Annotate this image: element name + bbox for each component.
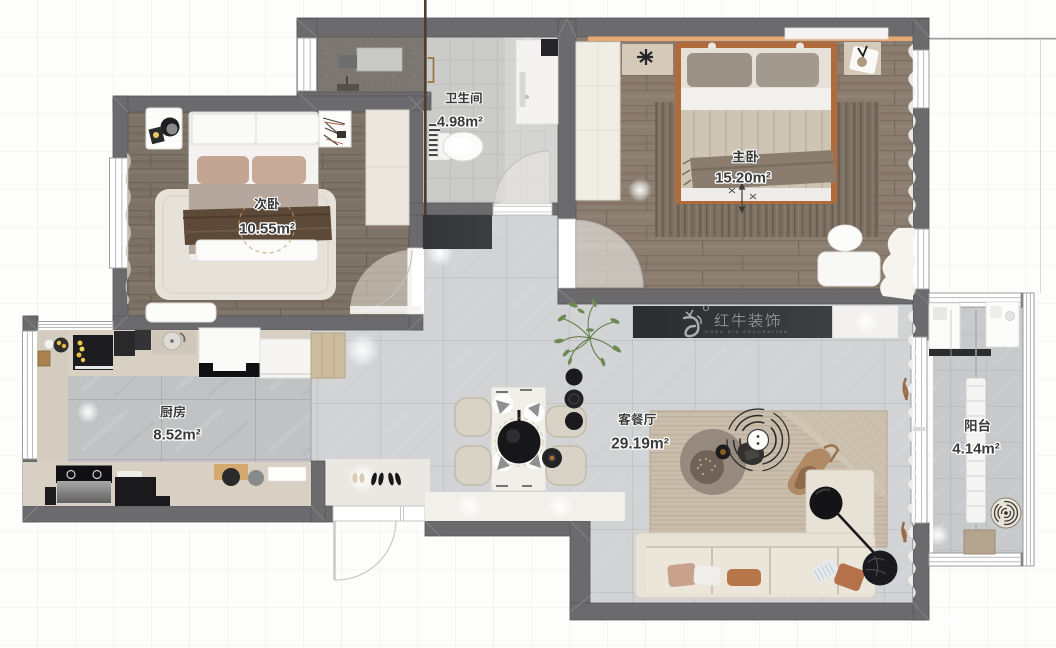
svg-text:4.14m²: 4.14m² (952, 441, 1000, 458)
svg-text:10.55m²: 10.55m² (239, 221, 295, 238)
svg-text:8.52m²: 8.52m² (153, 427, 201, 444)
svg-text:29.19m²: 29.19m² (611, 436, 669, 453)
svg-text:HONG NIU DECORATION: HONG NIU DECORATION (705, 329, 789, 334)
svg-text:15.20m²: 15.20m² (715, 170, 771, 187)
svg-text:4.98m²: 4.98m² (437, 115, 483, 131)
